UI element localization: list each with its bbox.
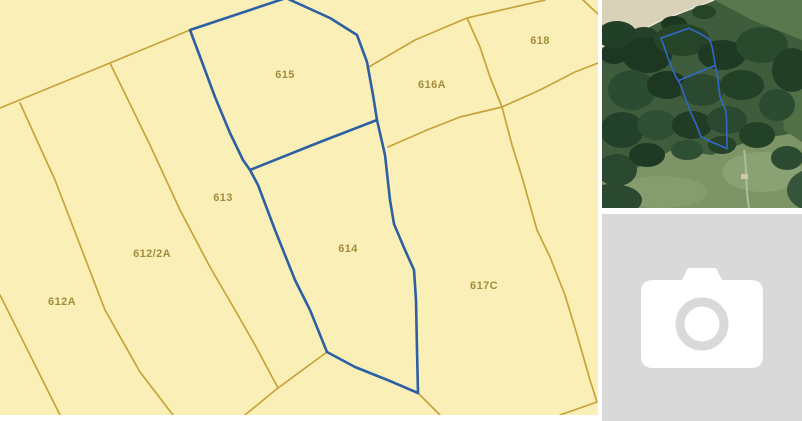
parcel-label-615: 615 [275,69,295,81]
parcel-label-618: 618 [530,35,550,47]
parcel-boundaries [0,0,598,415]
camera-icon [632,258,772,378]
parcel-label-616A: 616A [418,79,446,91]
parcel-label-613: 613 [213,192,233,204]
cadastral-map[interactable]: 615 616A 618 613 612/2A 612A 614 617C [0,0,598,415]
small-structure [741,174,748,179]
photo-placeholder[interactable] [602,214,802,421]
parcel-label-614: 614 [338,243,358,255]
parcel-viewer: 615 616A 618 613 612/2A 612A 614 617C [0,0,802,421]
aerial-photo [602,0,802,208]
parcel-label-617C: 617C [470,280,498,292]
aerial-photo-thumbnail[interactable] [602,0,802,208]
parcel-label-612A: 612A [48,296,76,308]
map-canvas [0,0,598,415]
parcel-label-612-2A: 612/2A [133,248,171,260]
